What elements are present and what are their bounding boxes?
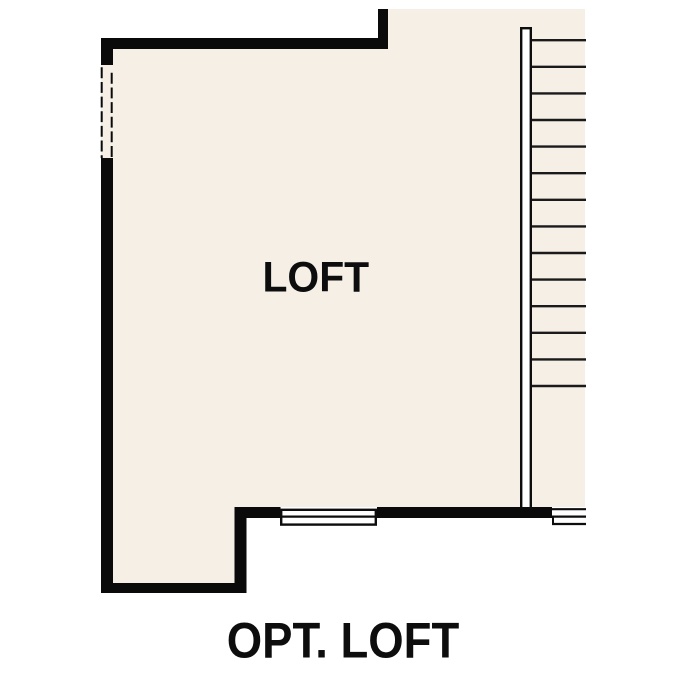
svg-text:OPT. LOFT: OPT. LOFT (227, 614, 460, 669)
svg-text:LOFT: LOFT (262, 253, 369, 301)
